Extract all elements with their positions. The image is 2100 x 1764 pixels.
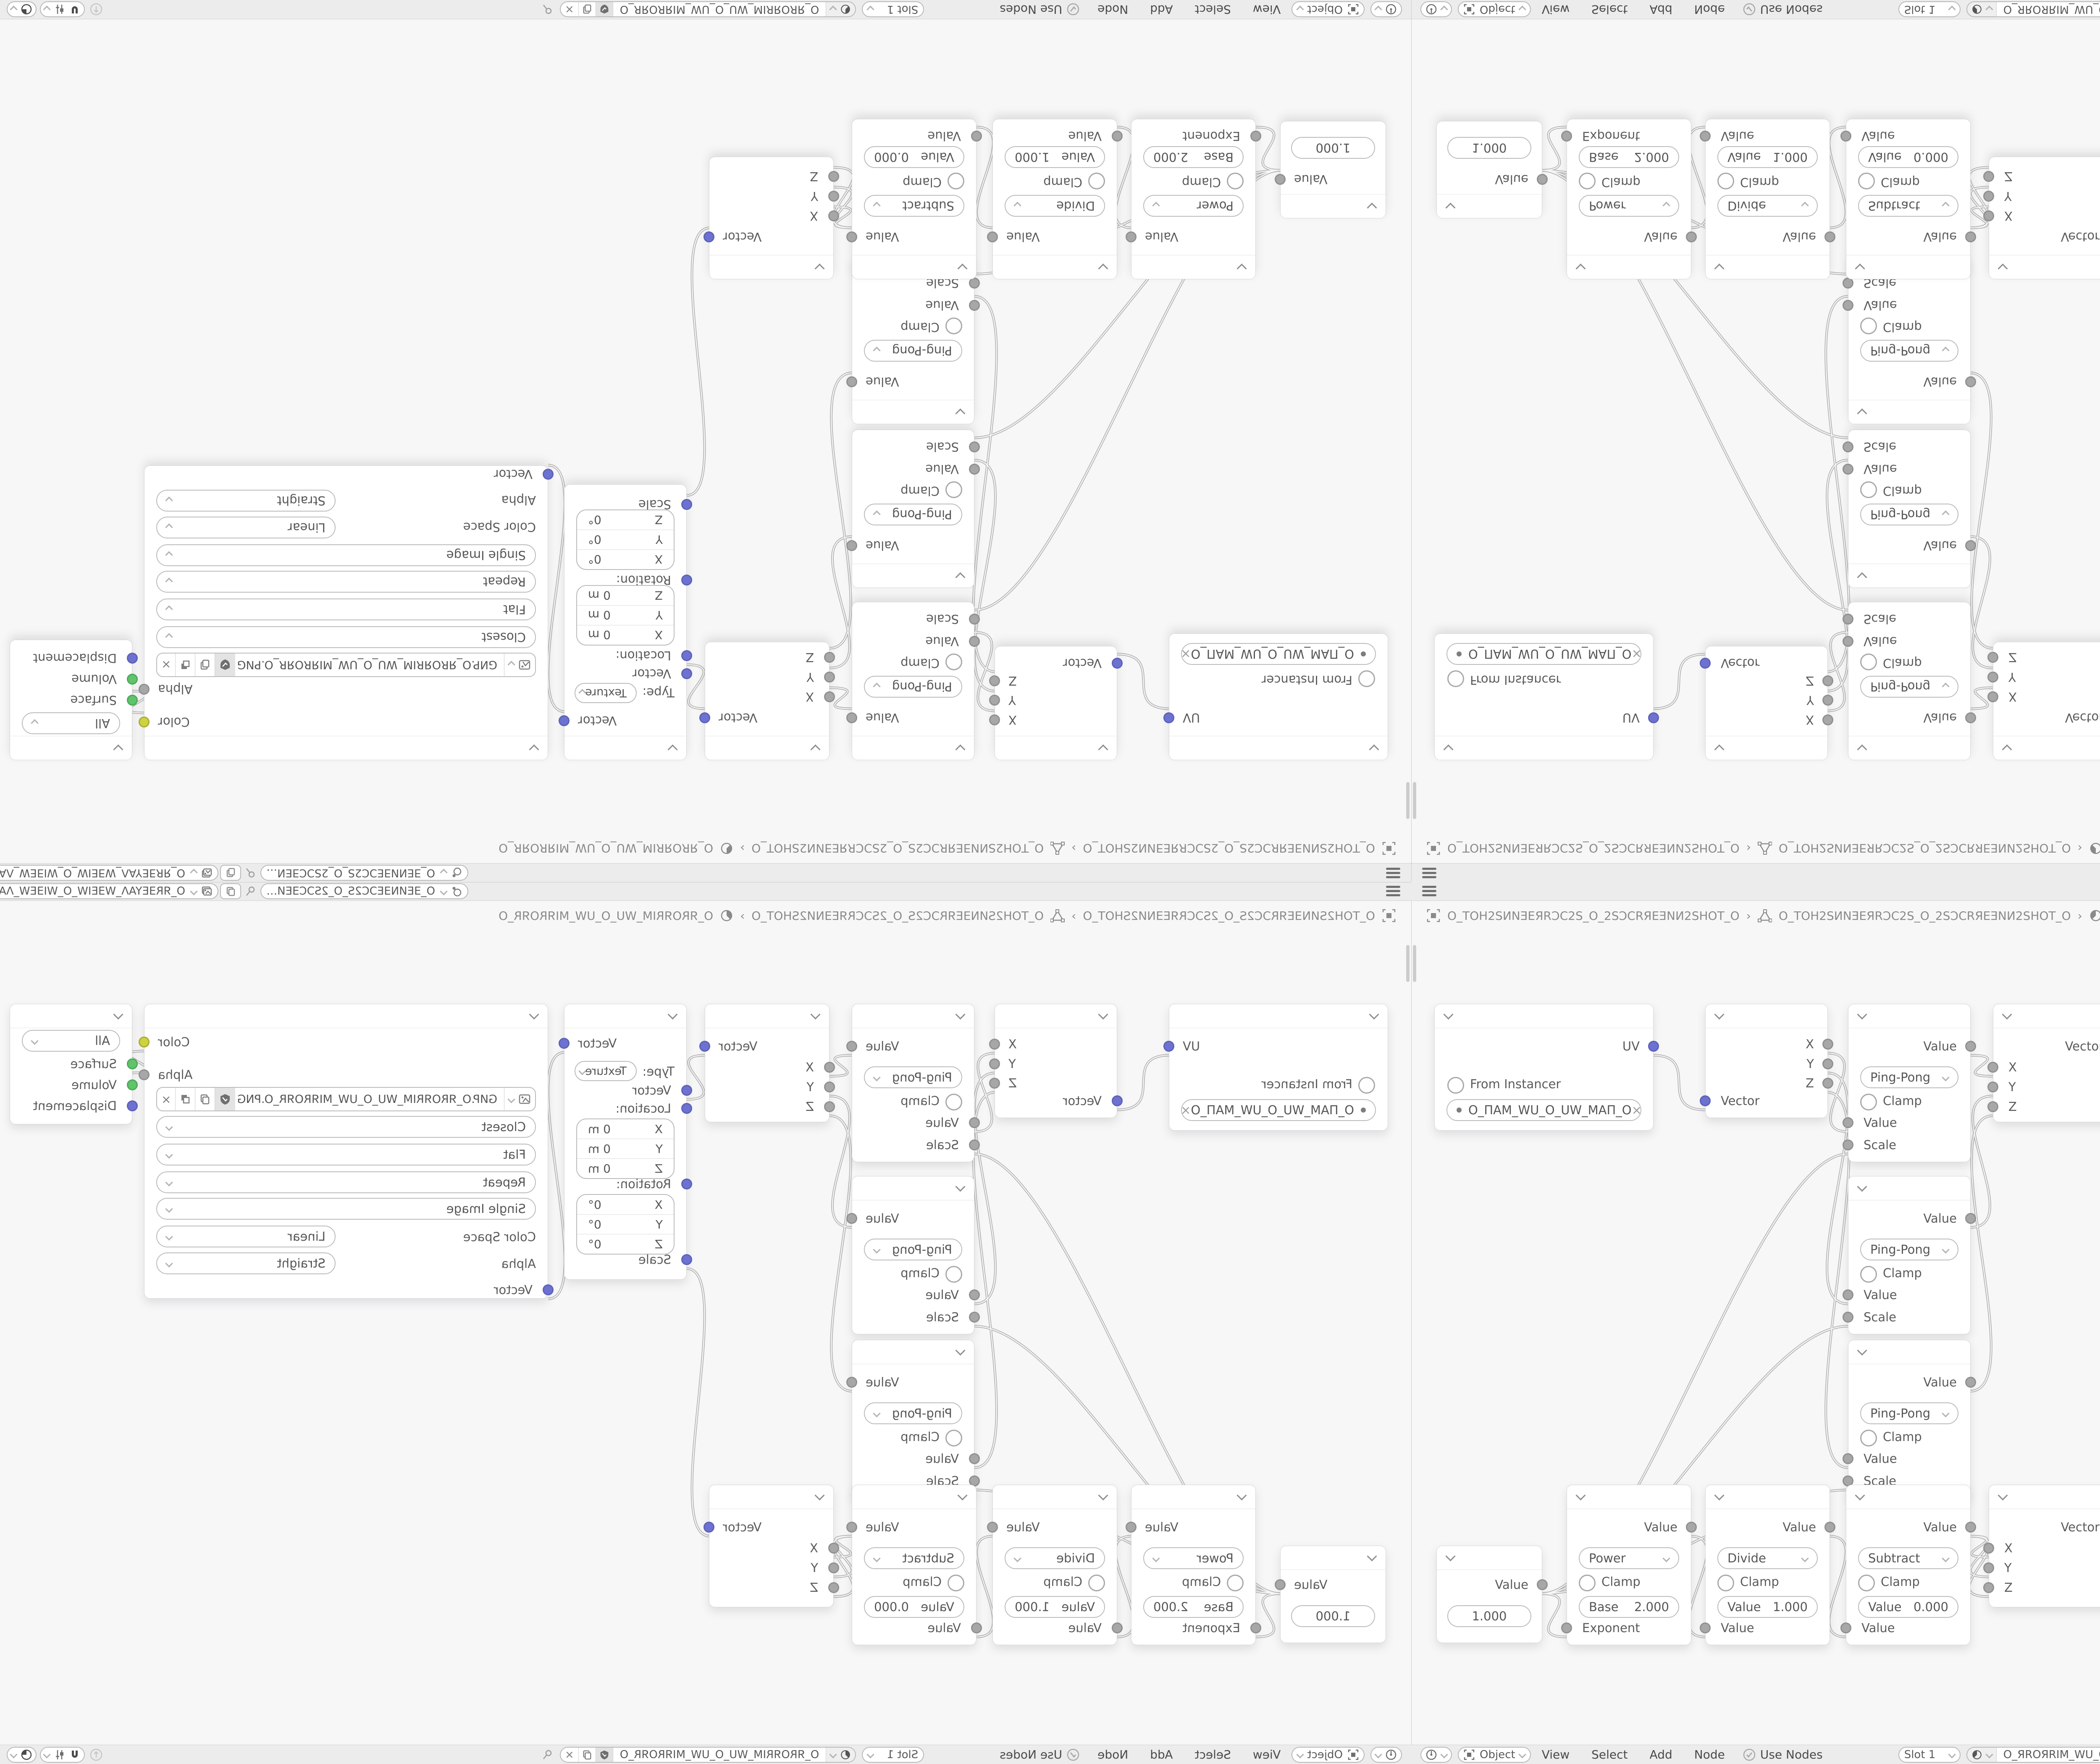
node-header[interactable] xyxy=(1169,1004,1388,1028)
socket-scale-input[interactable] xyxy=(1843,441,1853,452)
operation-dropdown[interactable]: Ping-Pong xyxy=(1860,1239,1958,1260)
alpha-mode-dropdown[interactable]: Straight xyxy=(156,1252,336,1274)
node-uv-map[interactable]: UV From Instancer O_ПAM_WU_O_UW_MAП_O × xyxy=(1434,1004,1654,1131)
socket-value-input[interactable] xyxy=(1843,300,1853,311)
color-space-dropdown[interactable]: Linear xyxy=(156,517,336,538)
fake-user-button[interactable] xyxy=(215,654,235,676)
socket-scale-input[interactable] xyxy=(1843,614,1853,625)
socket-uv-output[interactable] xyxy=(1163,712,1174,723)
node-math-subtract[interactable]: Value Subtract Clamp Value0.000 Value xyxy=(852,119,976,279)
rotation-fields[interactable]: X0° Y0° Z0° xyxy=(576,1194,675,1255)
vertical-scrollbar[interactable] xyxy=(1406,782,1410,819)
operation-dropdown[interactable]: Divide xyxy=(1717,1547,1818,1569)
operation-dropdown[interactable]: Power xyxy=(1143,195,1244,217)
node-header[interactable] xyxy=(1131,255,1255,279)
socket-rotation-input[interactable] xyxy=(681,575,692,585)
proportional-edit-icon[interactable] xyxy=(89,3,103,17)
socket-value-output[interactable] xyxy=(1275,1579,1286,1590)
socket-surface-input[interactable] xyxy=(127,695,138,706)
socket-y-input[interactable] xyxy=(1987,1081,1998,1092)
value-field[interactable]: Value0.000 xyxy=(1858,146,1958,168)
node-combine-xyz-top[interactable]: Vector X Y Z xyxy=(1993,642,2100,760)
clamp-checkbox[interactable] xyxy=(1579,173,1596,189)
node-header[interactable] xyxy=(1169,736,1388,760)
node-header[interactable] xyxy=(995,736,1117,760)
proportional-edit-icon[interactable] xyxy=(89,1748,103,1762)
extension-dropdown[interactable]: Repeat xyxy=(156,1171,536,1193)
node-header[interactable] xyxy=(1993,1004,2100,1028)
socket-vector-input[interactable] xyxy=(681,1085,692,1096)
socket-x-output[interactable] xyxy=(1822,714,1833,725)
socket-value-input[interactable] xyxy=(971,1622,982,1633)
socket-z-input[interactable] xyxy=(824,652,835,663)
clamp-checkbox[interactable] xyxy=(945,481,962,498)
clamp-checkbox[interactable] xyxy=(948,1575,964,1591)
type-dropdown[interactable]: Texture xyxy=(575,1061,637,1081)
socket-value-output[interactable] xyxy=(846,1041,857,1052)
socket-alpha-output[interactable] xyxy=(139,1069,150,1080)
new-image-button[interactable] xyxy=(195,654,215,676)
new-scene-button[interactable] xyxy=(220,865,241,881)
socket-x-input[interactable] xyxy=(1983,1543,1994,1554)
collapse-icon[interactable] xyxy=(2002,744,2012,754)
node-header[interactable] xyxy=(1706,1485,1830,1509)
value-field[interactable]: Value1.000 xyxy=(1717,1596,1818,1618)
node-value[interactable]: Value 1.000 xyxy=(1280,1546,1386,1643)
socket-scale-input[interactable] xyxy=(681,499,692,510)
collapse-icon[interactable] xyxy=(1098,1009,1108,1019)
socket-x-input[interactable] xyxy=(1983,210,1994,221)
socket-z-input[interactable] xyxy=(1983,171,1994,182)
node-value[interactable]: Value 1.000 xyxy=(1436,1546,1542,1643)
unlink-image-button[interactable]: × xyxy=(157,1088,175,1110)
operation-dropdown[interactable]: Ping-Pong xyxy=(1860,676,1958,698)
node-header[interactable] xyxy=(1989,255,2100,279)
socket-value-output[interactable] xyxy=(846,1213,857,1224)
socket-z-output[interactable] xyxy=(989,675,1000,686)
operation-dropdown[interactable]: Ping-Pong xyxy=(864,504,962,525)
socket-value-input[interactable] xyxy=(1700,131,1711,142)
node-header[interactable] xyxy=(852,1004,974,1028)
clamp-checkbox[interactable] xyxy=(945,654,962,670)
clamp-checkbox[interactable] xyxy=(945,1094,962,1110)
collapse-icon[interactable] xyxy=(1443,744,1453,754)
node-header[interactable] xyxy=(564,736,686,760)
socket-scale-input[interactable] xyxy=(1843,1312,1853,1323)
slot-dropdown[interactable]: Slot 1 xyxy=(862,1747,924,1763)
collapse-icon[interactable] xyxy=(1236,1490,1247,1500)
clamp-checkbox[interactable] xyxy=(1860,654,1877,670)
socket-value-output[interactable] xyxy=(1965,376,1976,387)
clamp-checkbox[interactable] xyxy=(1860,1266,1877,1283)
node-header[interactable] xyxy=(1281,1546,1386,1570)
breadcrumb-material[interactable]: O_ЯROЯRIM_WU_O_UW_MIЯROЯR_O xyxy=(499,842,713,856)
socket-surface-input[interactable] xyxy=(127,1058,138,1069)
socket-scale-input[interactable] xyxy=(969,1312,980,1323)
collapse-icon[interactable] xyxy=(1098,744,1108,754)
socket-value-output[interactable] xyxy=(846,712,857,723)
new-scene-button[interactable] xyxy=(220,883,241,899)
socket-value-output[interactable] xyxy=(846,376,857,387)
operation-dropdown[interactable]: Divide xyxy=(1005,195,1105,217)
collapse-icon[interactable] xyxy=(1714,1490,1724,1500)
node-header[interactable] xyxy=(1435,1004,1653,1028)
clamp-checkbox[interactable] xyxy=(1088,1575,1105,1591)
node-math-ping-pong-3[interactable]: Value Ping-Pong Clamp Value Scale xyxy=(852,1340,974,1498)
clamp-checkbox[interactable] xyxy=(945,1266,962,1283)
shader-editor-canvas[interactable]: O_TOH2SИNƎEЯRƆC2S_O_2SƆCRЯEƎNИ2SHOT_O › … xyxy=(0,19,1411,863)
breadcrumb-object[interactable]: O_TOH2SИNƎEЯRƆC2S_O_2SƆCRЯEƎNИ2SHOT_O xyxy=(1447,842,1740,856)
socket-value-input[interactable] xyxy=(1840,1622,1851,1633)
material-datablock-widget[interactable]: O_ЯROЯRIM_WU_O_UW_MIЯROЯR_O × xyxy=(560,2,856,18)
socket-value-output[interactable] xyxy=(1537,1579,1548,1590)
node-math-power[interactable]: Value Power Clamp Base2.000 Exponent xyxy=(1131,119,1256,279)
node-header[interactable] xyxy=(1848,400,1970,424)
node-uv-map[interactable]: UV From Instancer O_ПAM_WU_O_UW_MAП_O × xyxy=(1169,1004,1388,1131)
node-header[interactable] xyxy=(144,736,548,760)
collapse-icon[interactable] xyxy=(1367,1551,1377,1561)
clamp-checkbox[interactable] xyxy=(945,1430,962,1446)
collapse-icon[interactable] xyxy=(1998,1490,2008,1500)
shader-type-dropdown[interactable]: Object xyxy=(1291,2,1365,18)
shader-type-dropdown[interactable]: Object xyxy=(1291,1747,1365,1763)
node-header[interactable] xyxy=(1435,736,1653,760)
uv-map-dropdown[interactable]: O_ПAM_WU_O_UW_MAП_O × xyxy=(1181,1099,1376,1121)
breadcrumb-mesh[interactable]: O_TOH2SИNƎEЯRƆC2S_O_2SƆCRЯEƎNИ2SHOT_O xyxy=(751,909,1044,923)
value-field[interactable]: Value1.000 xyxy=(1005,146,1105,168)
use-nodes-label[interactable]: Use Nodes xyxy=(1000,3,1062,16)
collapse-icon[interactable] xyxy=(667,744,677,754)
node-image-texture[interactable]: Color Alpha GИP.O_ЯROЯRIM_WU_O_UW_MIЯROЯ… xyxy=(144,465,548,760)
node-header[interactable] xyxy=(1281,194,1386,218)
socket-vector-output[interactable] xyxy=(703,1522,714,1533)
socket-y-output[interactable] xyxy=(1822,1058,1833,1069)
operation-dropdown[interactable]: Ping-Pong xyxy=(864,676,962,698)
socket-scale-input[interactable] xyxy=(681,1254,692,1265)
clamp-checkbox[interactable] xyxy=(948,173,964,189)
clamp-checkbox[interactable] xyxy=(1860,318,1877,334)
value-field[interactable]: Value0.000 xyxy=(864,1596,964,1618)
node-uv-map[interactable]: UV From Instancer O_ПAM_WU_O_UW_MAП_O × xyxy=(1434,633,1654,760)
socket-value-output[interactable] xyxy=(1275,174,1286,185)
clamp-checkbox[interactable] xyxy=(1717,173,1734,189)
socket-value-input[interactable] xyxy=(969,1289,980,1300)
socket-value-input[interactable] xyxy=(1700,1622,1711,1633)
fake-user-button[interactable] xyxy=(596,1748,613,1762)
socket-value-input[interactable] xyxy=(1843,1453,1853,1464)
pin-icon[interactable] xyxy=(244,866,257,879)
node-combine-xyz-bottom[interactable]: Vector X Y Z xyxy=(1989,157,2100,279)
value-field[interactable]: 1.000 xyxy=(1291,1605,1375,1627)
collapse-icon[interactable] xyxy=(1445,202,1455,213)
socket-value-input[interactable] xyxy=(969,1117,980,1128)
rotation-fields[interactable]: X0° Y0° Z0° xyxy=(576,509,675,570)
node-header[interactable] xyxy=(144,1004,548,1028)
socket-vector-input[interactable] xyxy=(681,668,692,679)
socket-vector-output[interactable] xyxy=(559,1038,570,1049)
value-field[interactable]: Value1.000 xyxy=(1005,1596,1105,1618)
breadcrumb-object[interactable]: O_TOH2SИNƎEЯRƆC2S_O_2SƆCRЯEƎNИ2SHOT_O xyxy=(1083,842,1375,856)
socket-value-output[interactable] xyxy=(1686,231,1697,242)
node-header[interactable] xyxy=(1993,736,2100,760)
view-layer-dropdown[interactable]: O_ЯRƎEYAΛ_WƎEIW_O_WIƎEW_ΛAYƎEЯR_O xyxy=(0,865,218,881)
socket-scale-input[interactable] xyxy=(1843,1139,1853,1150)
collapse-icon[interactable] xyxy=(1857,744,1867,754)
vertical-scrollbar[interactable] xyxy=(1413,945,1416,982)
breadcrumb-object[interactable]: O_TOH2SИNƎEЯRƆC2S_O_2SƆCRЯEƎNИ2SHOT_O xyxy=(1447,909,1740,923)
collapse-icon[interactable] xyxy=(814,263,824,273)
node-math-ping-pong-1[interactable]: Value Ping-Pong Clamp Value Scale xyxy=(852,1004,974,1162)
socket-scale-input[interactable] xyxy=(969,441,980,452)
uv-map-dropdown[interactable]: O_ПAM_WU_O_UW_MAП_O × xyxy=(1181,643,1376,665)
operation-dropdown[interactable]: Subtract xyxy=(864,195,964,217)
socket-color-output[interactable] xyxy=(139,717,150,727)
operation-dropdown[interactable]: Power xyxy=(1579,195,1679,217)
node-header[interactable] xyxy=(1848,564,1970,588)
socket-x-output[interactable] xyxy=(989,1039,1000,1050)
socket-uv-output[interactable] xyxy=(1648,712,1659,723)
socket-value-input[interactable] xyxy=(971,131,982,142)
material-datablock-widget[interactable]: O_ЯROЯRIM_WU_O_UW_MIЯROЯR_O × xyxy=(1966,2,2100,18)
collapse-icon[interactable] xyxy=(113,744,123,754)
use-nodes-label[interactable]: Use Nodes xyxy=(1760,3,1823,16)
socket-value-input[interactable] xyxy=(1112,131,1123,142)
node-math-power[interactable]: Value Power Clamp Base2.000 Exponent xyxy=(1567,119,1691,279)
socket-z-input[interactable] xyxy=(1987,652,1998,663)
from-instancer-checkbox[interactable] xyxy=(1447,1077,1464,1094)
alpha-mode-dropdown[interactable]: Straight xyxy=(156,490,336,512)
collapse-icon[interactable] xyxy=(955,744,965,754)
menu-add[interactable]: Add xyxy=(1150,3,1173,16)
shader-editor-canvas[interactable]: O_TOH2SИNƎEЯRƆC2S_O_2SƆCRЯEƎNИ2SHOT_O › … xyxy=(0,901,1411,1745)
socket-rotation-input[interactable] xyxy=(681,1179,692,1189)
node-header[interactable] xyxy=(852,255,976,279)
menu-add[interactable]: Add xyxy=(1650,1748,1672,1761)
vertical-scrollbar[interactable] xyxy=(1413,782,1416,819)
socket-location-input[interactable] xyxy=(681,1103,692,1114)
uv-map-dropdown[interactable]: O_ПAM_WU_O_UW_MAП_O × xyxy=(1446,643,1641,665)
socket-y-input[interactable] xyxy=(1983,1562,1994,1573)
socket-value-input[interactable] xyxy=(969,1453,980,1464)
node-header[interactable] xyxy=(709,1485,833,1509)
socket-z-input[interactable] xyxy=(1983,1582,1994,1593)
socket-vector-input[interactable] xyxy=(543,469,554,480)
operation-dropdown[interactable]: Subtract xyxy=(1858,195,1958,217)
socket-value-output[interactable] xyxy=(846,1522,857,1533)
socket-value-output[interactable] xyxy=(846,231,857,242)
socket-value-output[interactable] xyxy=(1965,231,1976,242)
menu-add[interactable]: Add xyxy=(1650,3,1672,16)
collapse-icon[interactable] xyxy=(1857,1009,1867,1019)
menu-hamburger-icon[interactable] xyxy=(1422,886,1436,897)
source-dropdown[interactable]: Single Image xyxy=(156,1198,536,1220)
socket-vector-input[interactable] xyxy=(1112,1095,1123,1106)
operation-dropdown[interactable]: Ping-Pong xyxy=(864,340,962,362)
clamp-checkbox[interactable] xyxy=(1227,1575,1244,1591)
material-datablock-widget[interactable]: O_ЯROЯRIM_WU_O_UW_MIЯROЯR_O × xyxy=(1966,1747,2100,1763)
node-math-ping-pong-2[interactable]: Value Ping-Pong Clamp Value Scale xyxy=(1848,430,1971,588)
operation-dropdown[interactable]: Ping-Pong xyxy=(864,1402,962,1424)
snapping-controls[interactable] xyxy=(40,2,85,18)
collapse-icon[interactable] xyxy=(957,1490,967,1500)
menu-node[interactable]: Node xyxy=(1097,1748,1128,1761)
node-header[interactable] xyxy=(10,1004,132,1028)
node-header[interactable] xyxy=(1706,255,1830,279)
clamp-checkbox[interactable] xyxy=(1227,173,1244,189)
menu-select[interactable]: Select xyxy=(1591,1748,1627,1761)
socket-y-input[interactable] xyxy=(828,191,839,202)
socket-exponent-input[interactable] xyxy=(1561,131,1572,142)
editor-type-dropdown[interactable] xyxy=(1420,2,1452,18)
socket-value-input[interactable] xyxy=(1843,1289,1853,1300)
socket-color-output[interactable] xyxy=(139,1037,150,1047)
collapse-icon[interactable] xyxy=(1714,263,1724,273)
menu-hamburger-icon[interactable] xyxy=(1422,867,1436,878)
new-image-button[interactable] xyxy=(195,1088,215,1110)
socket-volume-input[interactable] xyxy=(127,1079,138,1090)
image-datablock-widget[interactable]: GИP.O_ЯROЯRIM_WU_O_UW_MIЯROЯR_O.PNG × xyxy=(156,1087,536,1111)
menu-hamburger-icon[interactable] xyxy=(1386,867,1400,878)
overlays-toggle[interactable] xyxy=(7,2,37,18)
menu-select[interactable]: Select xyxy=(1194,3,1231,16)
target-dropdown[interactable]: All xyxy=(22,712,120,734)
collapse-icon[interactable] xyxy=(1098,1490,1108,1500)
menu-add[interactable]: Add xyxy=(1150,1748,1173,1761)
node-math-divide[interactable]: Value Divide Clamp Value1.000 Value xyxy=(992,119,1117,279)
socket-x-input[interactable] xyxy=(1987,691,1998,702)
socket-value-output[interactable] xyxy=(1965,712,1976,723)
node-header[interactable] xyxy=(564,1004,686,1028)
socket-vector-output[interactable] xyxy=(699,1041,710,1052)
socket-value-output[interactable] xyxy=(987,1522,998,1533)
node-combine-xyz-top[interactable]: Vector X Y Z xyxy=(705,1004,829,1122)
node-math-divide[interactable]: Value Divide Clamp Value1.000 Value xyxy=(1705,1485,1830,1645)
new-material-button[interactable] xyxy=(579,3,596,17)
socket-z-output[interactable] xyxy=(989,1078,1000,1089)
socket-z-output[interactable] xyxy=(1822,1078,1833,1089)
use-nodes-checkbox[interactable] xyxy=(1743,1748,1756,1761)
node-value[interactable]: Value 1.000 xyxy=(1280,121,1386,218)
location-fields[interactable]: X0 m Y0 m Z0 m xyxy=(576,1118,675,1179)
from-instancer-checkbox[interactable] xyxy=(1358,670,1375,687)
socket-y-output[interactable] xyxy=(989,1058,1000,1069)
collapse-icon[interactable] xyxy=(529,1009,539,1019)
node-combine-xyz-bottom[interactable]: Vector X Y Z xyxy=(709,157,834,279)
node-mapping[interactable]: Vector Type: Texture Vector Location: X0… xyxy=(564,1004,687,1280)
image-browse-dropdown[interactable] xyxy=(504,1088,535,1110)
operation-dropdown[interactable]: Ping-Pong xyxy=(1860,504,1958,525)
socket-scale-input[interactable] xyxy=(969,1139,980,1150)
collapse-icon[interactable] xyxy=(667,1009,677,1019)
clamp-checkbox[interactable] xyxy=(1088,173,1105,189)
socket-vector-input[interactable] xyxy=(1112,658,1123,669)
collapse-icon[interactable] xyxy=(810,744,820,754)
base-field[interactable]: Base2.000 xyxy=(1143,1596,1244,1618)
socket-vector-output[interactable] xyxy=(699,712,710,723)
editor-type-dropdown[interactable] xyxy=(1370,1747,1402,1763)
view-layer-dropdown[interactable]: O_ЯRƎEYAΛ_WƎEIW_O_WIƎEW_ΛAYƎEЯR_O xyxy=(0,883,218,899)
socket-vector-output[interactable] xyxy=(703,231,714,242)
node-image-texture[interactable]: Color Alpha GИP.O_ЯROЯRIM_WU_O_UW_MIЯROЯ… xyxy=(144,1004,548,1299)
breadcrumb-mesh[interactable]: O_TOH2SИNƎEЯRƆC2S_O_2SƆCRЯEƎNИ2SHOT_O xyxy=(1779,909,2071,923)
slot-dropdown[interactable]: Slot 1 xyxy=(862,2,924,18)
node-header[interactable] xyxy=(1567,255,1691,279)
socket-value-output[interactable] xyxy=(1965,1213,1976,1224)
clamp-checkbox[interactable] xyxy=(1579,1575,1596,1591)
socket-x-input[interactable] xyxy=(828,210,839,221)
snapping-controls[interactable] xyxy=(40,1747,85,1763)
collapse-icon[interactable] xyxy=(955,408,965,418)
socket-y-output[interactable] xyxy=(989,695,1000,706)
node-header[interactable] xyxy=(993,255,1117,279)
slot-dropdown[interactable]: Slot 1 xyxy=(1898,1747,1961,1763)
socket-x-input[interactable] xyxy=(824,691,835,702)
operation-dropdown[interactable]: Power xyxy=(1579,1547,1679,1569)
socket-x-output[interactable] xyxy=(1822,1039,1833,1050)
node-header[interactable] xyxy=(1848,1176,1970,1200)
socket-y-input[interactable] xyxy=(1983,191,1994,202)
menu-view[interactable]: View xyxy=(1542,1748,1570,1761)
node-header[interactable] xyxy=(852,1485,976,1509)
socket-exponent-input[interactable] xyxy=(1561,1622,1572,1633)
operation-dropdown[interactable]: Power xyxy=(1143,1547,1244,1569)
node-header[interactable] xyxy=(709,255,833,279)
node-math-ping-pong-2[interactable]: Value Ping-Pong Clamp Value Scale xyxy=(1848,1176,1971,1334)
node-combine-xyz-bottom[interactable]: Vector X Y Z xyxy=(1989,1485,2100,1607)
socket-z-input[interactable] xyxy=(1987,1101,1998,1112)
node-math-ping-pong-2[interactable]: Value Ping-Pong Clamp Value Scale xyxy=(852,1176,974,1334)
clear-uv-button[interactable]: × xyxy=(1181,647,1191,661)
from-instancer-checkbox[interactable] xyxy=(1447,670,1464,687)
collapse-icon[interactable] xyxy=(1998,263,2008,273)
collapse-icon[interactable] xyxy=(955,1009,965,1019)
node-math-ping-pong-3[interactable]: Value Ping-Pong Clamp Value Scale xyxy=(1848,1340,1971,1498)
clamp-checkbox[interactable] xyxy=(1858,173,1875,189)
collapse-icon[interactable] xyxy=(1857,572,1867,582)
menu-node[interactable]: Node xyxy=(1694,1748,1725,1761)
collapse-icon[interactable] xyxy=(2002,1009,2012,1019)
vertical-scrollbar[interactable] xyxy=(1406,945,1410,982)
menu-view[interactable]: View xyxy=(1542,3,1570,16)
fake-user-button[interactable] xyxy=(596,3,613,17)
use-nodes-label[interactable]: Use Nodes xyxy=(1760,1748,1823,1761)
node-math-ping-pong-2[interactable]: Value Ping-Pong Clamp Value Scale xyxy=(852,430,974,588)
node-header[interactable] xyxy=(852,564,974,588)
collapse-icon[interactable] xyxy=(955,572,965,582)
collapse-icon[interactable] xyxy=(1714,744,1724,754)
socket-vector-input[interactable] xyxy=(1700,658,1711,669)
node-material-output[interactable]: All Surface Volume Displacement xyxy=(10,640,132,760)
menu-select[interactable]: Select xyxy=(1591,3,1627,16)
node-combine-xyz-top[interactable]: Vector X Y Z xyxy=(1993,1004,2100,1122)
value-field[interactable]: 1.000 xyxy=(1291,137,1375,159)
collapse-icon[interactable] xyxy=(113,1009,123,1019)
socket-y-input[interactable] xyxy=(1987,672,1998,682)
collapse-icon[interactable] xyxy=(814,1490,824,1500)
collapse-icon[interactable] xyxy=(1855,1490,1865,1500)
node-math-ping-pong-1[interactable]: Value Ping-Pong Clamp Value Scale xyxy=(1848,602,1971,760)
menu-select[interactable]: Select xyxy=(1194,1748,1231,1761)
socket-displacement-input[interactable] xyxy=(127,1100,138,1111)
node-math-subtract[interactable]: Value Subtract Clamp Value0.000 Value xyxy=(1846,1485,1971,1645)
socket-y-input[interactable] xyxy=(824,1081,835,1092)
socket-value-input[interactable] xyxy=(1843,1117,1853,1128)
node-math-power[interactable]: Value Power Clamp Base2.000 Exponent xyxy=(1131,1485,1256,1645)
node-math-ping-pong-1[interactable]: Value Ping-Pong Clamp Value Scale xyxy=(1848,1004,1971,1162)
node-header[interactable] xyxy=(852,736,974,760)
unlink-material-button[interactable]: × xyxy=(561,1748,579,1762)
clamp-checkbox[interactable] xyxy=(1858,1575,1875,1591)
